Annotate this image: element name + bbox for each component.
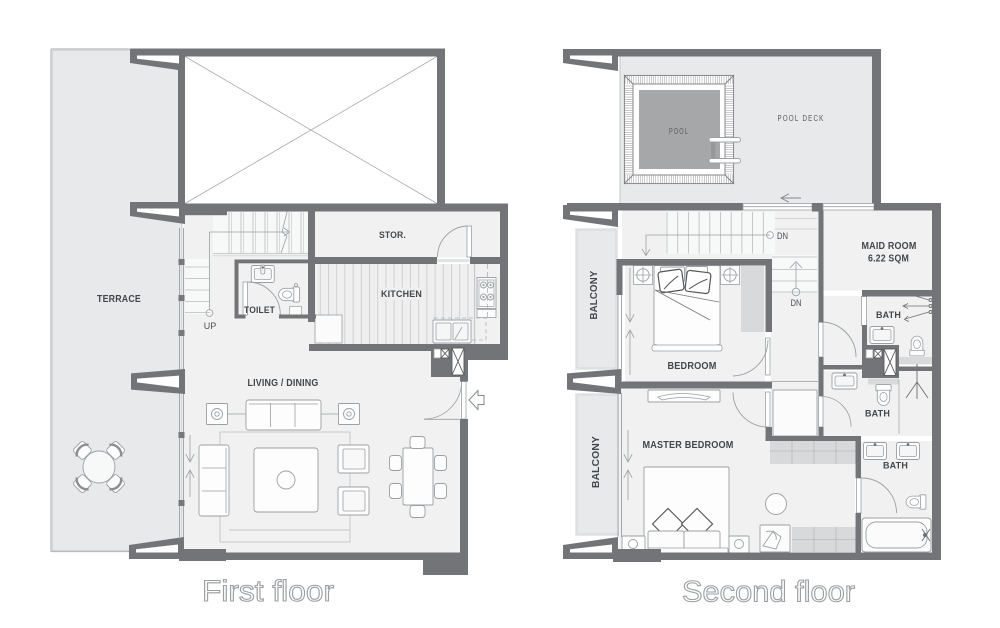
svg-text:BATH: BATH: [883, 461, 908, 472]
svg-text:STOR.: STOR.: [379, 230, 406, 241]
svg-text:LIVING / DINING: LIVING / DINING: [248, 378, 319, 389]
svg-text:POOL: POOL: [669, 127, 689, 136]
svg-text:TERRACE: TERRACE: [97, 294, 141, 305]
svg-text:MASTER BEDROOM: MASTER BEDROOM: [643, 440, 734, 451]
svg-text:6.22 SQM: 6.22 SQM: [868, 254, 909, 265]
svg-text:DN: DN: [791, 298, 802, 308]
svg-text:First floor: First floor: [202, 575, 334, 608]
svg-text:BALCONY: BALCONY: [589, 270, 600, 319]
svg-text:POOL DECK: POOL DECK: [778, 114, 825, 123]
svg-text:BATH: BATH: [876, 310, 901, 321]
svg-text:BEDROOM: BEDROOM: [668, 361, 717, 372]
svg-text:KITCHEN: KITCHEN: [381, 289, 422, 300]
svg-text:Second floor: Second floor: [682, 576, 855, 609]
svg-text:TOILET: TOILET: [244, 305, 275, 316]
svg-text:BALCONY: BALCONY: [591, 436, 602, 488]
svg-text:UP: UP: [204, 321, 217, 331]
svg-text:MAID ROOM: MAID ROOM: [862, 241, 917, 252]
svg-text:BATH: BATH: [865, 409, 890, 420]
svg-text:DN: DN: [777, 231, 788, 241]
